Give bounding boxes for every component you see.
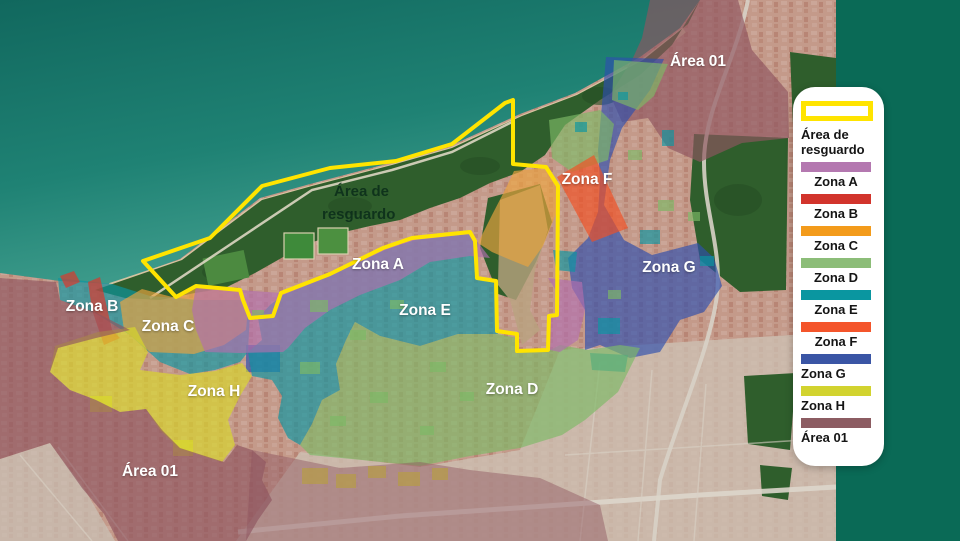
map-label-area01-bottom: Área 01: [122, 463, 178, 480]
legend-resguardo-swatch: [801, 101, 873, 121]
legend-label-zona-b: Zona B: [801, 206, 871, 221]
legend-item-zona-f: Zona F: [801, 322, 876, 349]
legend-item-zona-b: Zona B: [801, 194, 876, 221]
map-label-zona-a: Zona A: [352, 256, 404, 273]
legend-resguardo-label: Área de resguardo: [801, 127, 876, 157]
legend-card: Área de resguardo Zona A Zona B Zona C Z…: [793, 87, 884, 466]
legend-item-zona-c: Zona C: [801, 226, 876, 253]
legend-swatch-zona-g: [801, 354, 871, 364]
map-label-zona-b: Zona B: [66, 298, 119, 315]
legend-label-area-01: Área 01: [801, 430, 871, 445]
legend-item-zona-a: Zona A: [801, 162, 876, 189]
map-label-resguardo-line2: resguardo: [322, 206, 395, 223]
legend-label-zona-d: Zona D: [801, 270, 871, 285]
legend-label-zona-e: Zona E: [801, 302, 871, 317]
map-label-zona-f: Zona F: [562, 171, 613, 188]
map-label-area01-top: Área 01: [670, 53, 726, 70]
map-label-zona-e: Zona E: [399, 302, 451, 319]
legend-label-zona-c: Zona C: [801, 238, 871, 253]
legend-label-zona-a: Zona A: [801, 174, 871, 189]
legend-item-zona-g: Zona G: [801, 354, 876, 381]
map-label-zona-g: Zona G: [642, 259, 695, 276]
map-label-zona-h: Zona H: [188, 383, 241, 400]
legend-item-area-01: Área 01: [801, 418, 876, 445]
legend-swatch-zona-f: [801, 322, 871, 332]
legend-swatch-area-01: [801, 418, 871, 428]
legend-swatch-zona-b: [801, 194, 871, 204]
legend-item-zona-h: Zona H: [801, 386, 876, 413]
screenshot-stage: Área de resguardo Área 01 Zona F Zona G …: [0, 0, 960, 541]
legend-swatch-zona-e: [801, 290, 871, 300]
map-label-zona-d: Zona D: [486, 381, 539, 398]
legend-swatch-zona-c: [801, 226, 871, 236]
legend-label-zona-f: Zona F: [801, 334, 871, 349]
map-label-resguardo-line1: Área de: [334, 183, 389, 200]
legend-item-zona-d: Zona D: [801, 258, 876, 285]
map-label-zona-c: Zona C: [142, 318, 195, 335]
satellite-map: Área de resguardo Área 01 Zona F Zona G …: [0, 0, 836, 541]
legend-item-zona-e: Zona E: [801, 290, 876, 317]
legend-label-zona-h: Zona H: [801, 398, 871, 413]
legend-swatch-zona-h: [801, 386, 871, 396]
legend-label-zona-g: Zona G: [801, 366, 871, 381]
legend-swatch-zona-a: [801, 162, 871, 172]
legend-swatch-zona-d: [801, 258, 871, 268]
